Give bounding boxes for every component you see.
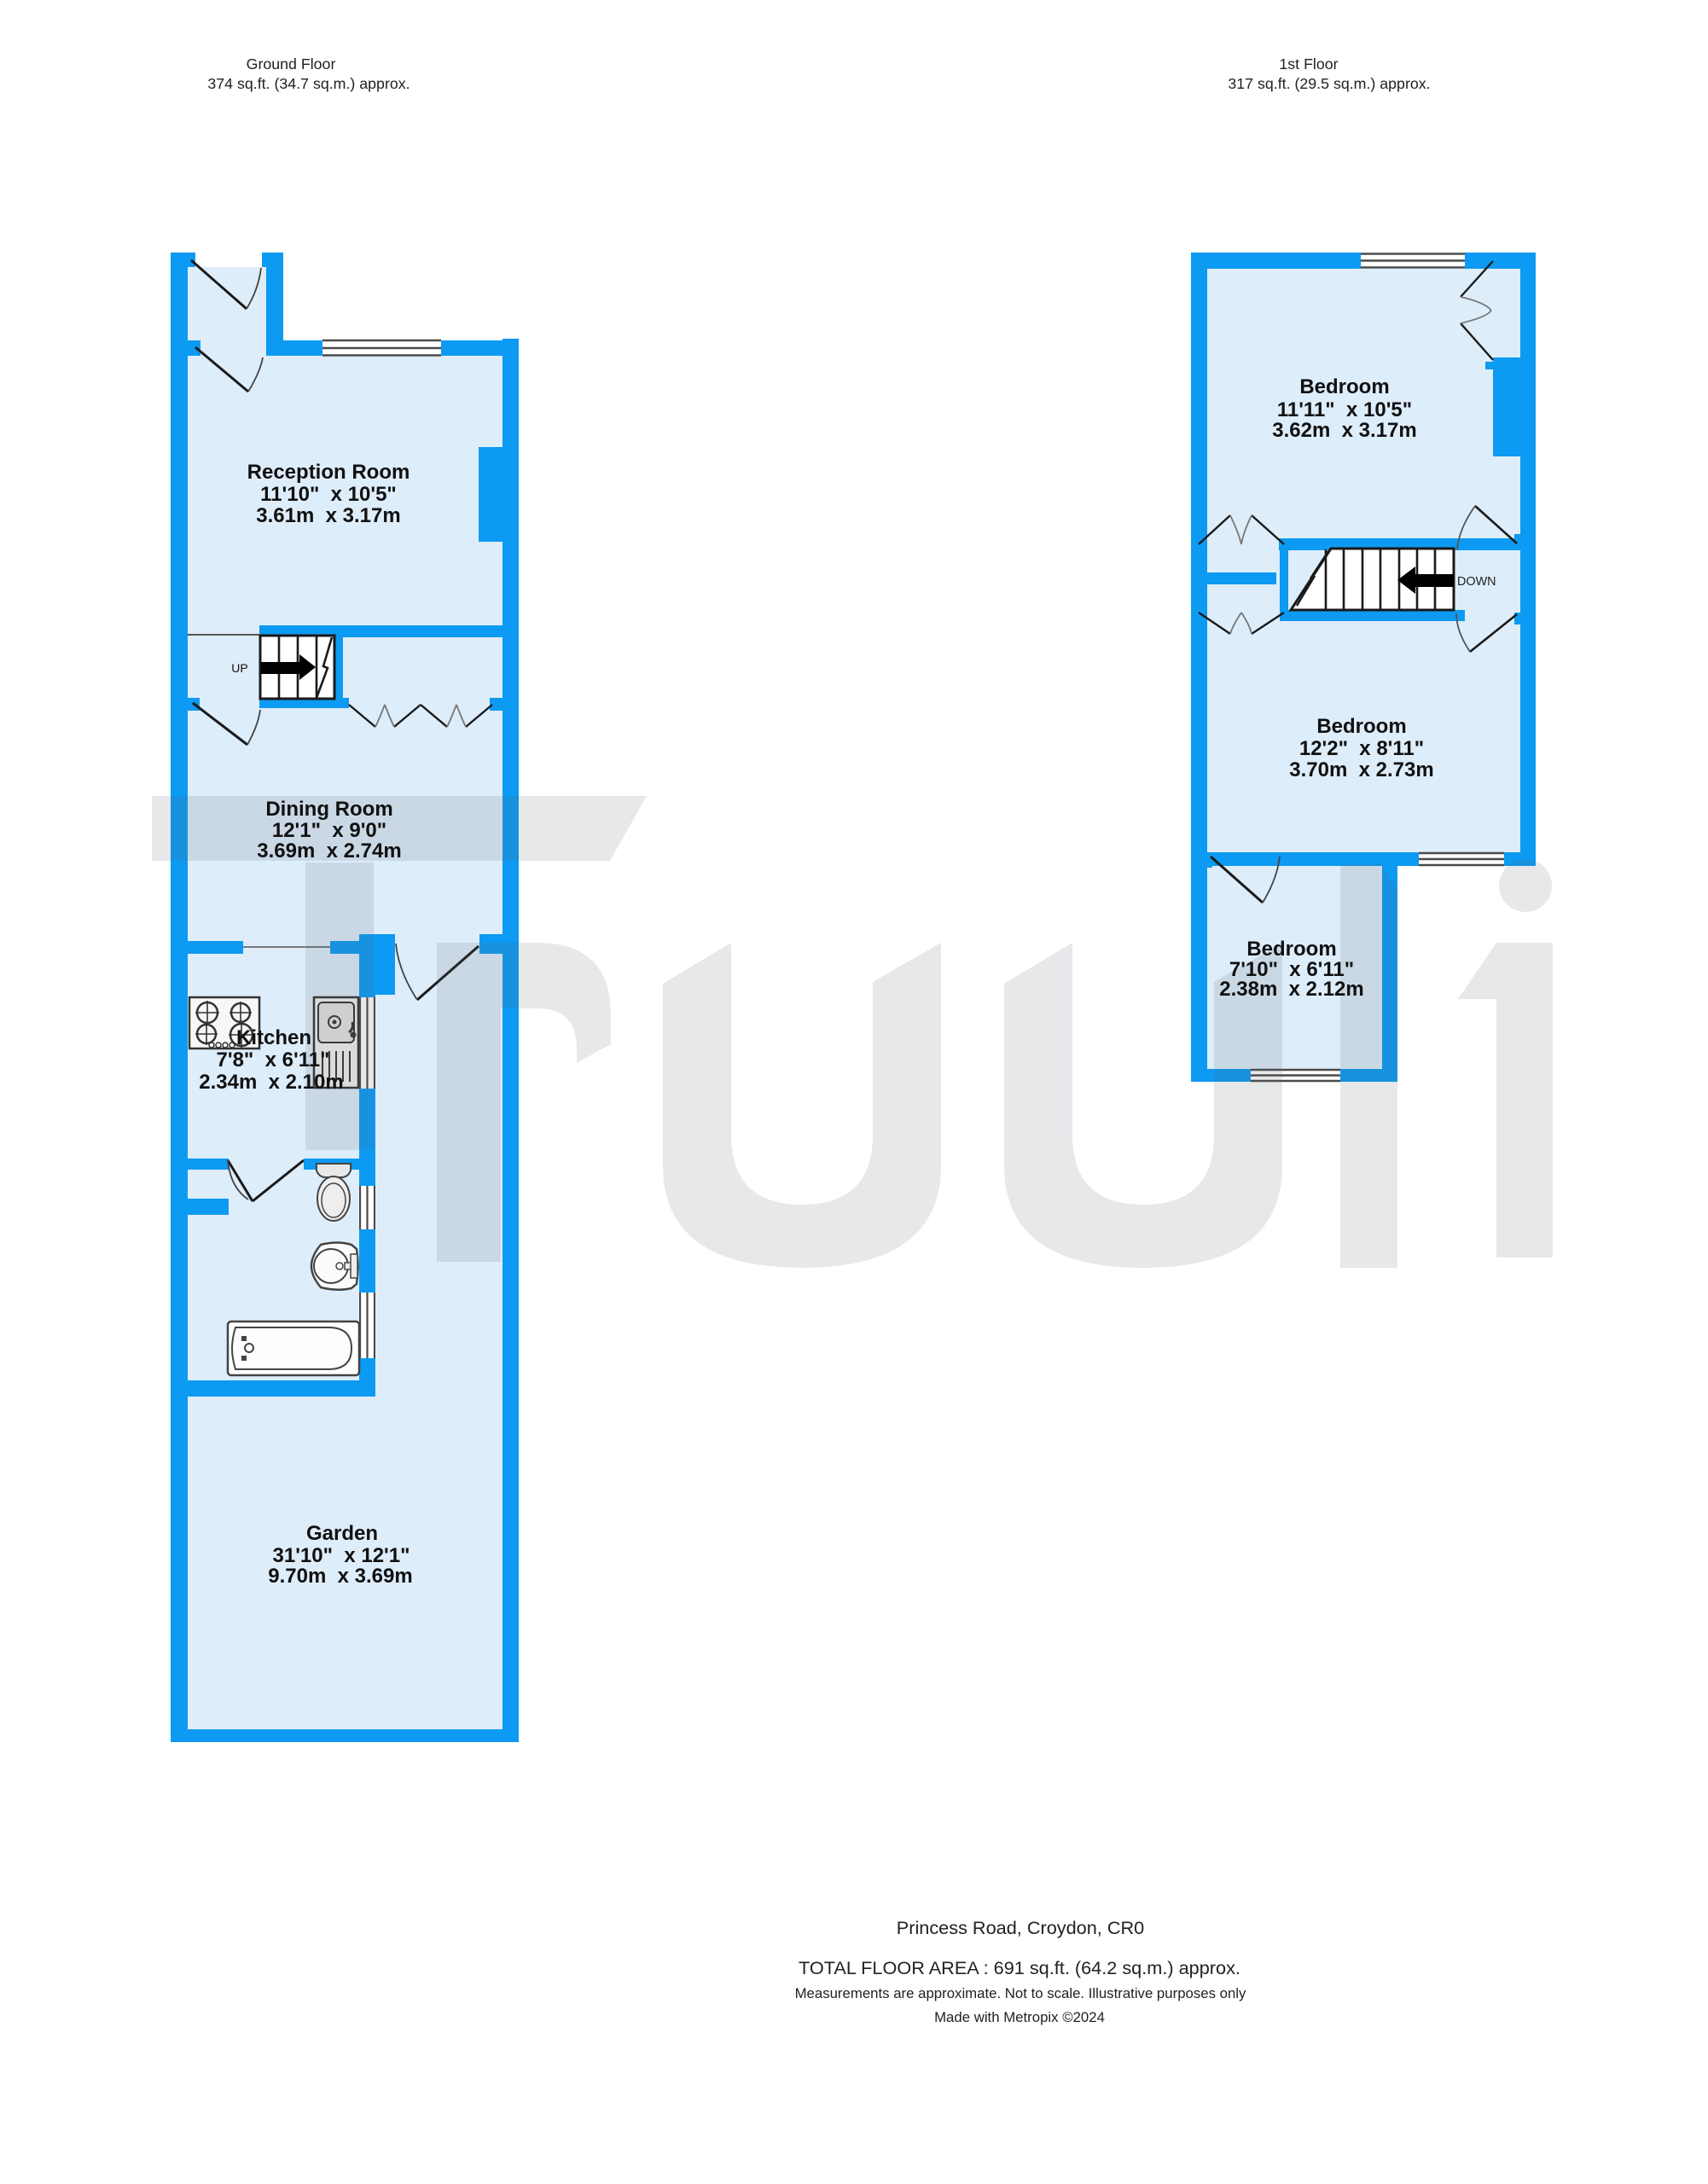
svg-text:TOTAL FLOOR AREA : 691 sq.ft.: TOTAL FLOOR AREA : 691 sq.ft. (64.2 sq.m…	[799, 1957, 1240, 1978]
svg-text:7'8" x 6'11": 7'8" x 6'11"	[217, 1048, 330, 1072]
svg-text:Bedroom: Bedroom	[1316, 715, 1406, 738]
svg-text:Bedroom: Bedroom	[1299, 375, 1389, 398]
svg-text:31'10" x 12'1": 31'10" x 12'1"	[273, 1544, 410, 1567]
svg-text:Reception Room: Reception Room	[247, 461, 410, 484]
svg-text:11'11" x 10'5": 11'11" x 10'5"	[1277, 398, 1412, 421]
svg-text:Ground Floor: Ground Floor	[247, 55, 336, 73]
svg-text:317 sq.ft. (29.5 sq.m.) approx: 317 sq.ft. (29.5 sq.m.) approx.	[1228, 75, 1430, 92]
svg-text:3.69m x 2.74m: 3.69m x 2.74m	[257, 839, 401, 863]
svg-text:9.70m x 3.69m: 9.70m x 3.69m	[268, 1565, 412, 1588]
svg-text:Made with Metropix ©2024: Made with Metropix ©2024	[934, 2009, 1105, 2025]
svg-text:Measurements are approximate.: Measurements are approximate. Not to sca…	[795, 1985, 1246, 2001]
svg-text:374 sq.ft. (34.7 sq.m.) approx: 374 sq.ft. (34.7 sq.m.) approx.	[207, 75, 410, 92]
svg-text:3.61m x 3.17m: 3.61m x 3.17m	[256, 504, 400, 527]
svg-text:12'1" x 9'0": 12'1" x 9'0"	[272, 819, 386, 842]
svg-text:2.38m x 2.12m: 2.38m x 2.12m	[1219, 978, 1363, 1001]
svg-text:Garden: Garden	[306, 1522, 378, 1545]
svg-text:2.34m x 2.10m: 2.34m x 2.10m	[199, 1071, 343, 1094]
svg-text:Bedroom: Bedroom	[1246, 938, 1336, 961]
svg-text:Kitchen: Kitchen	[236, 1026, 311, 1049]
svg-text:12'2" x 8'11": 12'2" x 8'11"	[1299, 737, 1424, 760]
svg-text:UP: UP	[231, 661, 247, 675]
svg-text:3.62m x 3.17m: 3.62m x 3.17m	[1272, 419, 1416, 442]
svg-text:Dining Room: Dining Room	[265, 798, 392, 821]
svg-text:DOWN: DOWN	[1457, 575, 1496, 589]
svg-text:Princess Road, Croydon, CR0: Princess Road, Croydon, CR0	[897, 1917, 1145, 1938]
svg-text:1st Floor: 1st Floor	[1279, 55, 1338, 73]
svg-text:3.70m x 2.73m: 3.70m x 2.73m	[1289, 758, 1433, 781]
svg-text:11'10" x 10'5": 11'10" x 10'5"	[260, 483, 397, 506]
